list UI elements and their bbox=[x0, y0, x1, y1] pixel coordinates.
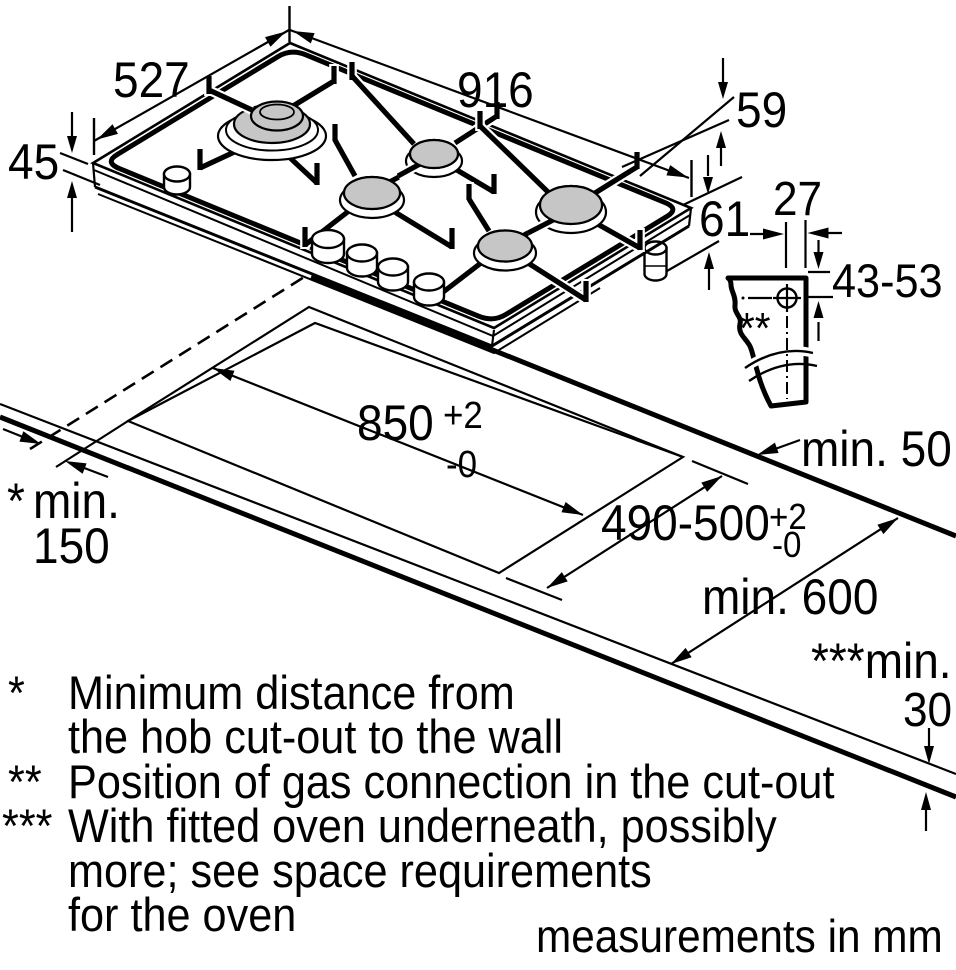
svg-text:61: 61 bbox=[699, 192, 750, 247]
svg-text:59: 59 bbox=[736, 83, 787, 138]
svg-text:+2: +2 bbox=[443, 394, 483, 437]
svg-text:min. 600: min. 600 bbox=[702, 570, 878, 625]
svg-text:measurements in mm: measurements in mm bbox=[536, 911, 943, 962]
svg-text:490-500: 490-500 bbox=[601, 496, 770, 551]
svg-text:45: 45 bbox=[8, 135, 59, 190]
svg-text:-0: -0 bbox=[446, 443, 477, 486]
svg-text:-0: -0 bbox=[772, 526, 801, 566]
svg-text:***min.: ***min. bbox=[811, 634, 952, 689]
svg-text:150: 150 bbox=[33, 519, 110, 574]
svg-text:***: *** bbox=[2, 799, 52, 852]
svg-text:527: 527 bbox=[113, 53, 190, 108]
svg-text:850: 850 bbox=[357, 396, 434, 451]
svg-text:*: * bbox=[8, 666, 25, 719]
svg-text:**: ** bbox=[739, 303, 771, 352]
svg-text:for the oven: for the oven bbox=[68, 888, 296, 941]
svg-text:30: 30 bbox=[903, 682, 952, 736]
svg-text:916: 916 bbox=[457, 63, 534, 118]
svg-text:*: * bbox=[7, 474, 25, 529]
svg-text:min. 50: min. 50 bbox=[801, 422, 952, 477]
svg-text:43-53: 43-53 bbox=[832, 254, 943, 307]
svg-text:27: 27 bbox=[773, 171, 822, 225]
